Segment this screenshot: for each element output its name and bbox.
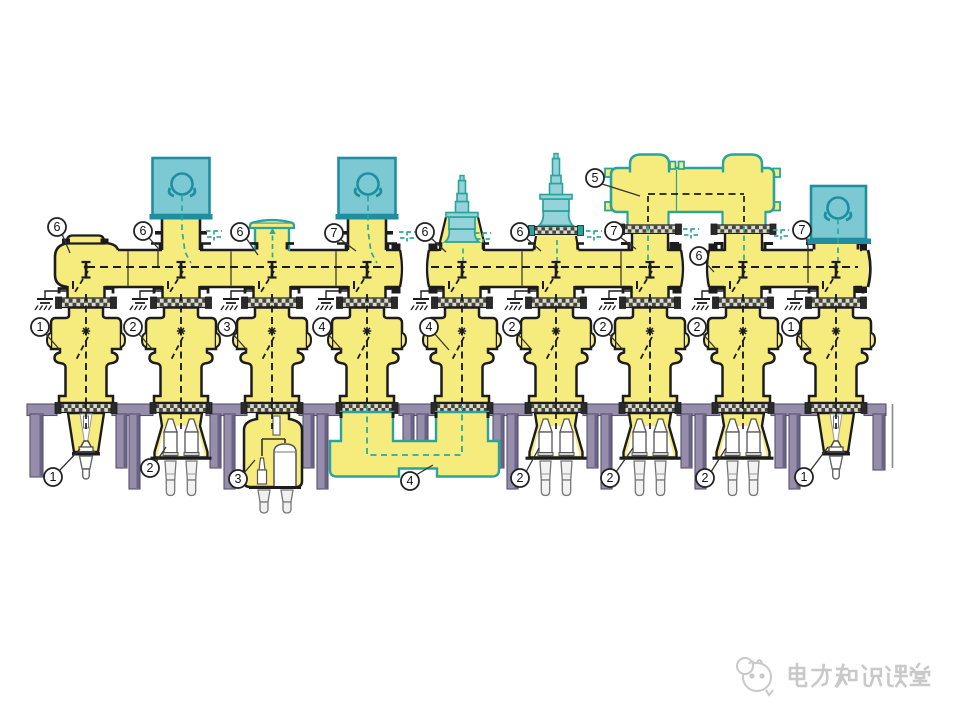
svg-text:6: 6 bbox=[140, 224, 147, 238]
svg-text:7: 7 bbox=[331, 226, 338, 240]
svg-text:1: 1 bbox=[50, 470, 57, 484]
svg-text:1: 1 bbox=[37, 320, 44, 334]
svg-text:2: 2 bbox=[607, 471, 614, 485]
svg-text:1: 1 bbox=[788, 320, 795, 334]
svg-text:7: 7 bbox=[611, 224, 618, 238]
svg-text:6: 6 bbox=[237, 225, 244, 239]
svg-text:2: 2 bbox=[600, 320, 607, 334]
svg-text:4: 4 bbox=[426, 320, 433, 334]
svg-text:2: 2 bbox=[509, 320, 516, 334]
svg-text:3: 3 bbox=[235, 472, 242, 486]
svg-text:6: 6 bbox=[517, 225, 524, 239]
svg-text:6: 6 bbox=[422, 225, 429, 239]
svg-text:4: 4 bbox=[319, 320, 326, 334]
svg-text:7: 7 bbox=[799, 223, 806, 237]
svg-text:2: 2 bbox=[694, 320, 701, 334]
svg-text:3: 3 bbox=[224, 320, 231, 334]
svg-text:2: 2 bbox=[147, 461, 154, 475]
svg-text:5: 5 bbox=[592, 171, 599, 185]
svg-text:2: 2 bbox=[517, 471, 524, 485]
svg-text:2: 2 bbox=[702, 471, 709, 485]
svg-text:6: 6 bbox=[54, 220, 61, 234]
svg-text:2: 2 bbox=[130, 320, 137, 334]
svg-text:1: 1 bbox=[801, 470, 808, 484]
svg-text:4: 4 bbox=[407, 474, 414, 488]
svg-text:6: 6 bbox=[696, 249, 703, 263]
